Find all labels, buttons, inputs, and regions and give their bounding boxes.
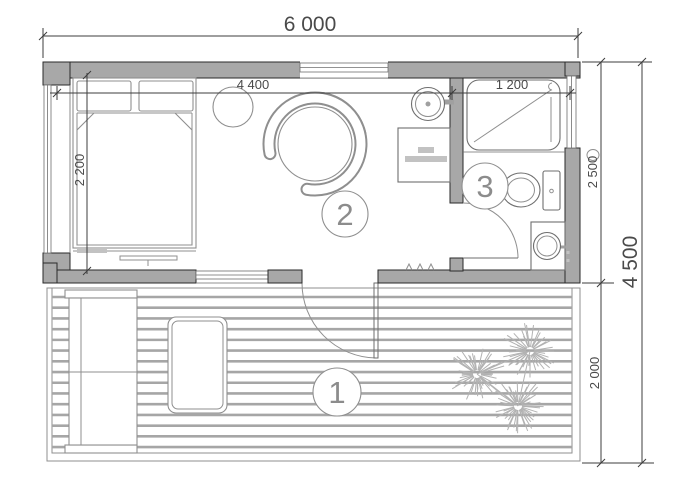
room-1-label: 1: [328, 375, 345, 410]
bottom-wall-right: [378, 270, 580, 283]
kitchen-counter: [398, 128, 450, 182]
dim-interior-width-label: 4 400: [237, 77, 270, 92]
plant-stem: [518, 351, 530, 406]
plant-frond: [517, 381, 518, 402]
deck-table-outer: [168, 317, 227, 413]
pillow-right: [139, 81, 193, 111]
dining-set: [269, 98, 361, 190]
dim-shower-width-label: 1 200: [496, 77, 529, 92]
valve-top: [567, 251, 570, 254]
deck-table: [168, 317, 227, 413]
floor-plan-drawing: 1 2 3 6 000 4 400 1 200 2 200: [0, 0, 674, 502]
sun-lounger: [65, 290, 137, 453]
pillow-left: [77, 81, 131, 111]
dim-house-depth-label: 2 500: [585, 156, 600, 189]
bathroom-door: [463, 203, 518, 258]
room-2-label: 2: [336, 197, 353, 232]
kitchenette: [398, 88, 454, 183]
floor-plan-canvas: 1 2 3 6 000 4 400 1 200 2 200: [0, 0, 674, 502]
lounger-foot-cap: [65, 445, 137, 453]
threshold-ticks: [406, 264, 434, 270]
dining-table: [278, 107, 352, 181]
toilet: [502, 171, 560, 210]
bottom-wall-mid: [268, 270, 302, 283]
dim-width-total: 6 000: [39, 13, 582, 58]
counter-item-large: [405, 156, 447, 162]
counter-item-small: [418, 147, 434, 153]
right-wall-bottom: [565, 148, 580, 283]
entry-door: [302, 283, 378, 358]
right-wall-top: [565, 62, 580, 76]
bathroom-sink-unit: [531, 222, 570, 270]
dim-right-outer: 4 500: [619, 58, 646, 467]
partition-stub: [450, 258, 463, 271]
entry-door-swing-arc: [302, 283, 376, 358]
room-3-label: 3: [476, 169, 493, 204]
bed: [73, 78, 196, 266]
bottom-wall-step: [43, 263, 57, 283]
dim-total-depth-label: 4 500: [619, 236, 642, 289]
plant-frond: [534, 350, 548, 351]
kitchen-sink-drain: [426, 102, 431, 107]
toilet-tank: [543, 171, 560, 210]
left-wall-top: [43, 62, 70, 85]
tv-bar: [120, 256, 177, 260]
bathroom-sink-outer: [534, 233, 561, 260]
shelf-item: [77, 249, 107, 253]
valve-bottom: [567, 259, 570, 262]
dim-right-inner: 2 500 2 000: [582, 58, 654, 467]
plant-frond: [477, 378, 478, 390]
plant-frond: [516, 350, 526, 351]
plant-frond: [522, 406, 533, 407]
bottom-wall-left: [57, 270, 196, 283]
bathroom-door-swing-arc: [463, 203, 518, 258]
entry-door-leaf: [374, 283, 378, 358]
dim-width-total-label: 6 000: [284, 13, 337, 36]
dim-deck-depth-label: 2 000: [587, 357, 602, 390]
lounger-head-cap: [65, 290, 137, 298]
dim-bed-length-label: 2 200: [72, 154, 87, 187]
blanket: [77, 113, 192, 245]
